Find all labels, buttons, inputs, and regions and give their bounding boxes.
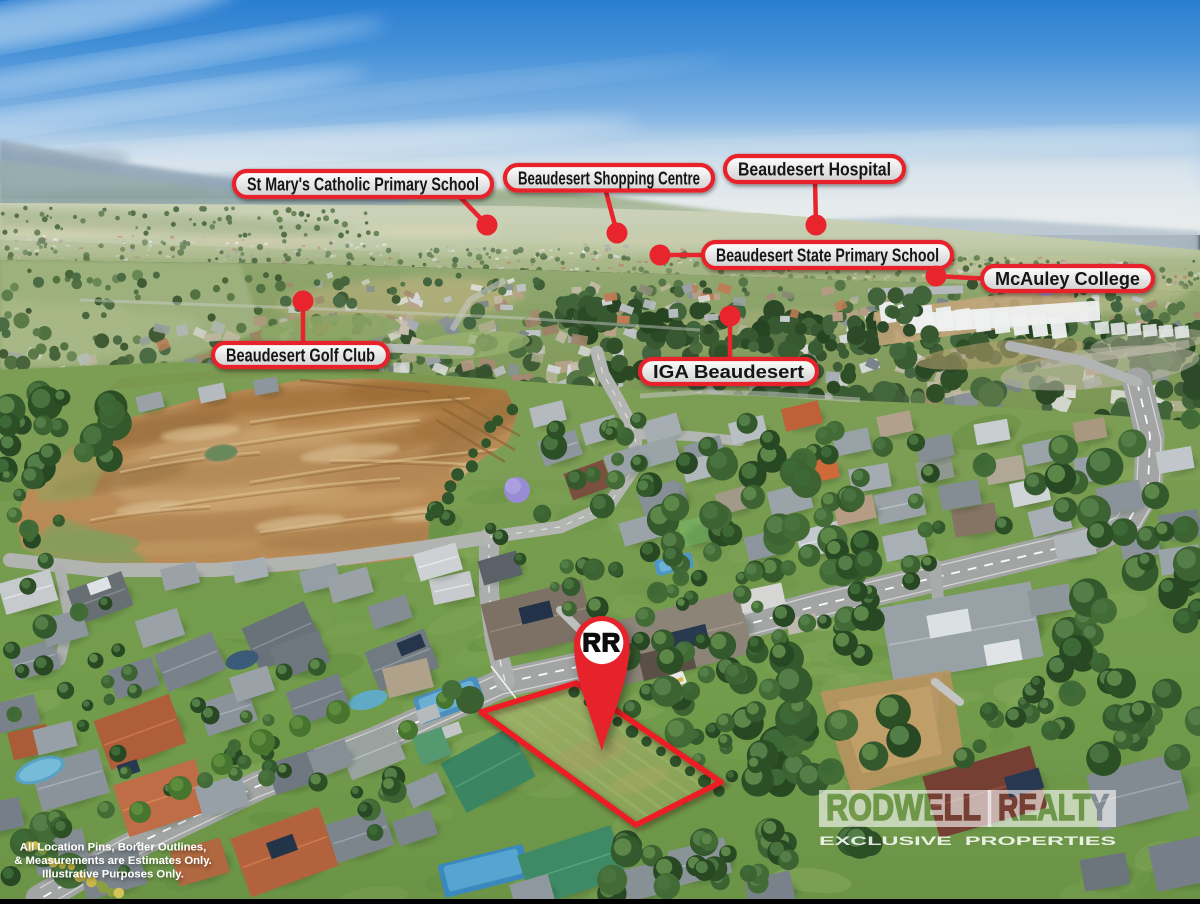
- svg-text:Beaudesert Golf Club: Beaudesert Golf Club: [226, 345, 375, 365]
- svg-text:EXCLUSIVE PROPERTIES: EXCLUSIVE PROPERTIES: [819, 836, 1117, 848]
- svg-text:Beaudesert Hospital: Beaudesert Hospital: [738, 159, 891, 180]
- svg-text:Illustrative Purposes Only.: Illustrative Purposes Only.: [42, 869, 184, 881]
- svg-text:Beaudesert Shopping Centre: Beaudesert Shopping Centre: [518, 167, 700, 188]
- svg-text:IGA Beaudesert: IGA Beaudesert: [653, 361, 804, 382]
- svg-text:& Measurements are Estimates O: & Measurements are Estimates Only.: [14, 855, 212, 867]
- svg-text:McAuley College: McAuley College: [995, 268, 1140, 289]
- svg-text:St Mary's Catholic Primary Sch: St Mary's Catholic Primary School: [247, 174, 479, 195]
- svg-text:All Location Pins, Border Outl: All Location Pins, Border Outlines,: [20, 842, 206, 854]
- svg-text:Beaudesert State Primary Schoo: Beaudesert State Primary School: [716, 245, 939, 266]
